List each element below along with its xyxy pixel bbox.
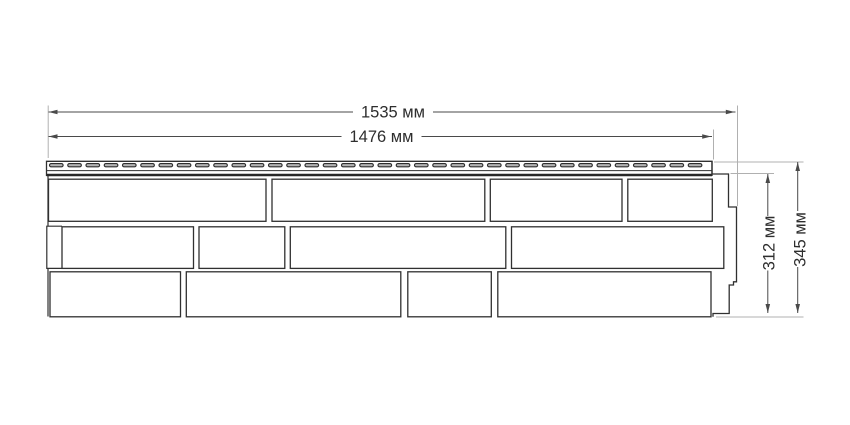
svg-text:1535 мм: 1535 мм	[361, 104, 425, 122]
svg-text:1476 мм: 1476 мм	[350, 128, 414, 146]
svg-text:312 мм: 312 мм	[761, 216, 779, 271]
svg-text:345 мм: 345 мм	[792, 212, 810, 267]
